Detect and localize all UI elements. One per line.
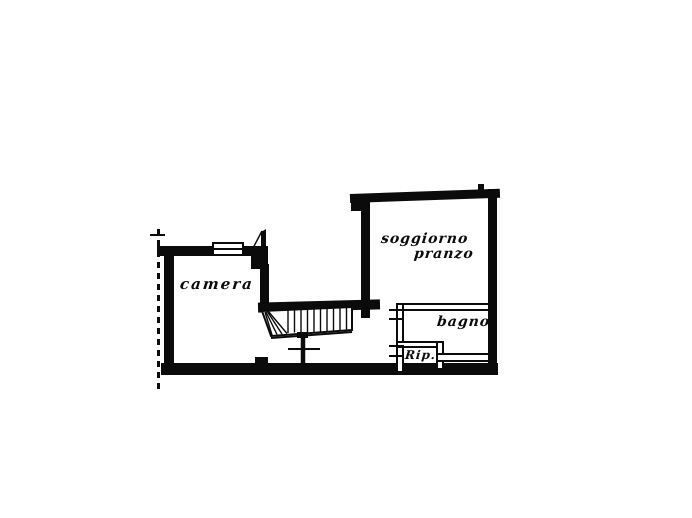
- floor-plan: camera soggiorno pranzo bagno Rip.: [0, 0, 692, 518]
- soggiorno-label-line1: soggiorno: [380, 231, 469, 247]
- door-swing-line: [252, 231, 262, 250]
- camera-label: camera: [179, 275, 255, 293]
- staircase-and-symbols: [0, 0, 692, 518]
- bagno-label: bagno: [436, 314, 491, 330]
- rip-label: Rip.: [404, 348, 437, 362]
- soggiorno-label-line2: pranzo: [413, 246, 474, 262]
